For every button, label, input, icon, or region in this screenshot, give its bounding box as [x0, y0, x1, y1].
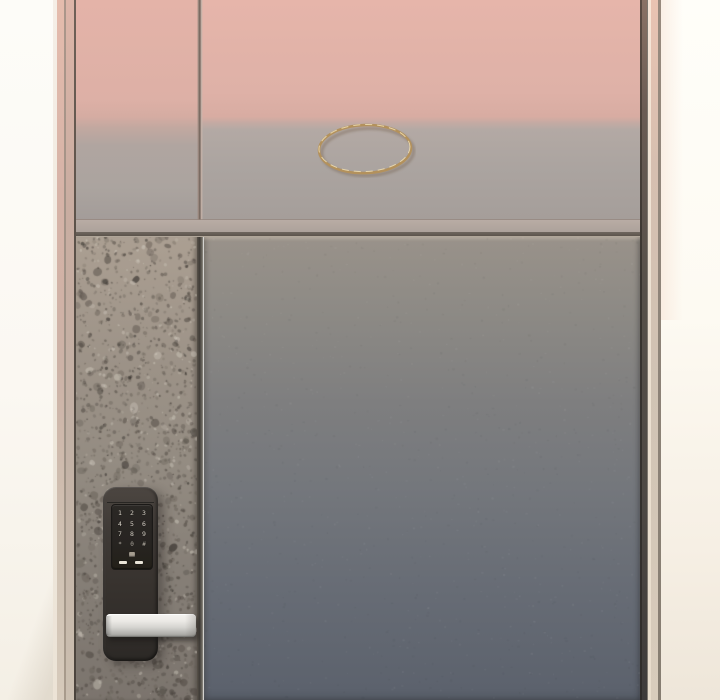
keypad-key-6: 6: [138, 519, 150, 530]
door-upper-panel-right: [200, 0, 640, 220]
brass-ring: [315, 118, 417, 179]
keypad-key-1: 1: [114, 508, 126, 519]
keypad-key-star: *: [114, 540, 126, 551]
keypad-key-8: 8: [126, 529, 138, 540]
door-leaf: 1 2 3 4 5 6 7 8 9 * 0 #: [76, 0, 648, 700]
wall-left-corner-shadow: [0, 560, 53, 700]
keypad-key-hash: #: [138, 540, 150, 551]
keypad-key-0: 0: [126, 540, 138, 551]
door-vertical-seam-upper: [197, 0, 203, 220]
keypad-panel: 1 2 3 4 5 6 7 8 9 * 0 #: [111, 504, 153, 570]
door-handle-lever: [106, 614, 196, 637]
door-latch-edge: [640, 0, 648, 700]
door-horizontal-seam: [76, 219, 640, 237]
digital-door-lock: 1 2 3 4 5 6 7 8 9 * 0 #: [103, 487, 223, 663]
door-main-panel: [204, 237, 640, 700]
handle-root-shade: [106, 616, 112, 635]
panel-grain-texture: [204, 237, 640, 700]
keypad-key-2: 2: [126, 508, 138, 519]
ring-body: [318, 123, 412, 174]
seam-band: [76, 220, 640, 232]
lock-brand-emblem: [129, 552, 135, 557]
doorframe-left-inner-face: [66, 0, 74, 700]
ring-shadow: [321, 127, 415, 177]
wall-right-pink-cast: [661, 0, 683, 320]
door-upper-panel-left: [76, 0, 200, 220]
doorframe-left: [53, 0, 76, 700]
doorframe-left-face: [57, 0, 64, 700]
doorframe-right: [648, 0, 661, 700]
doorframe-right-face: [651, 0, 658, 700]
keypad-key-5: 5: [126, 519, 138, 530]
lock-indicator-dash: [119, 561, 127, 564]
keypad-key-7: 7: [114, 529, 126, 540]
scene-door-entrance: 1 2 3 4 5 6 7 8 9 * 0 #: [0, 0, 720, 700]
keypad-key-3: 3: [138, 508, 150, 519]
keypad-grid: 1 2 3 4 5 6 7 8 9 * 0 #: [114, 508, 150, 550]
lock-indicator-dash: [135, 561, 143, 564]
handle-endcap-shade: [185, 614, 196, 637]
keypad-key-4: 4: [114, 519, 126, 530]
keypad-key-9: 9: [138, 529, 150, 540]
wall-left: [0, 0, 53, 700]
